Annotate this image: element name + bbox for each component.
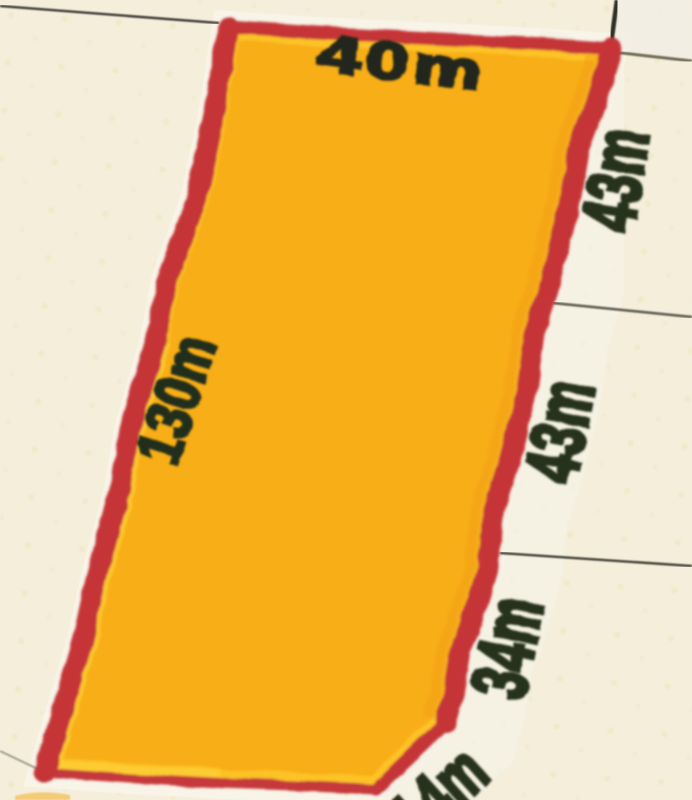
svg-text:43m: 43m: [566, 122, 666, 237]
